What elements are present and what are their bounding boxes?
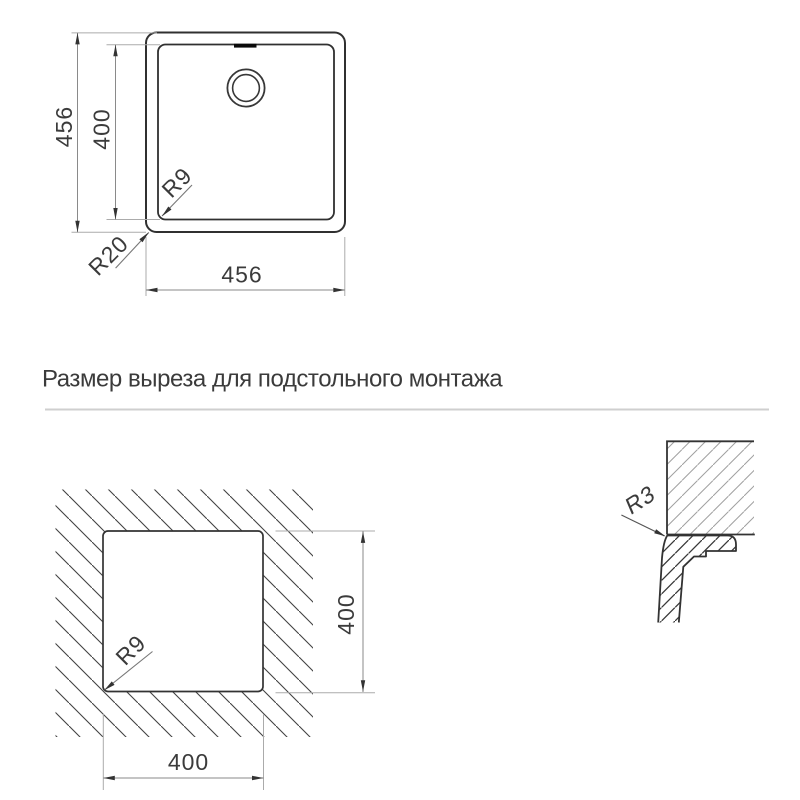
svg-text:R20: R20: [83, 230, 133, 280]
svg-text:400: 400: [333, 593, 359, 634]
svg-text:Размер выреза для подстольного: Размер выреза для подстольного монтажа: [42, 366, 503, 393]
svg-text:400: 400: [89, 108, 115, 149]
svg-text:R9: R9: [157, 162, 198, 203]
svg-text:400: 400: [168, 749, 209, 775]
svg-text:456: 456: [221, 261, 262, 287]
svg-text:R3: R3: [622, 479, 659, 520]
svg-text:R9: R9: [110, 630, 151, 671]
svg-text:456: 456: [51, 106, 77, 147]
